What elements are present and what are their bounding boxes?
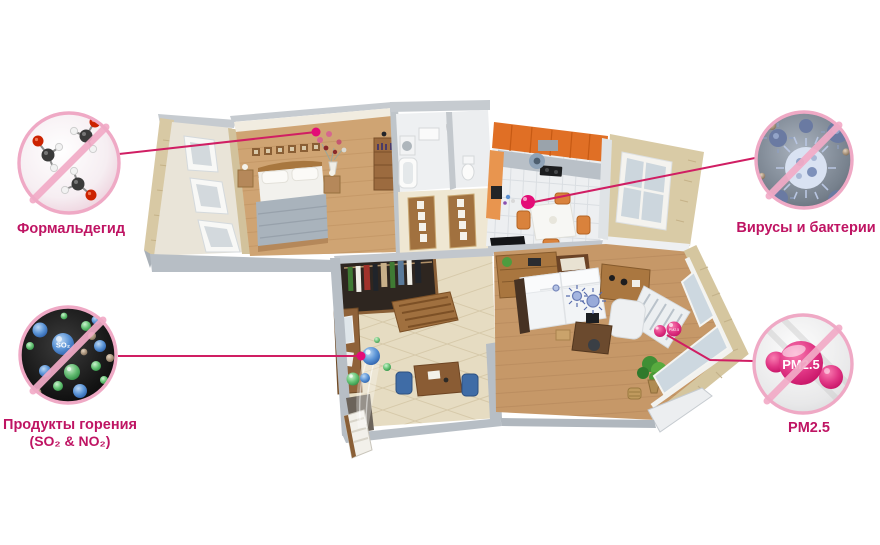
callout-combustion: SO₂ bbox=[20, 307, 116, 412]
bedroom-bottom-wall bbox=[150, 254, 336, 272]
kitchen-fan-center bbox=[534, 158, 541, 165]
virus-marker-glint bbox=[523, 197, 527, 201]
formaldehyde-marker-dot bbox=[312, 128, 321, 137]
callout-formaldehyde bbox=[19, 113, 119, 213]
electronics bbox=[528, 258, 541, 266]
armchair bbox=[608, 298, 647, 340]
hall-chair-right bbox=[462, 374, 478, 396]
label-combustion-line1: Продукты горения bbox=[3, 417, 137, 433]
interior-door-right bbox=[448, 194, 476, 248]
so2-sphere-2 bbox=[64, 364, 80, 380]
plant-small bbox=[502, 257, 512, 267]
apartment-infographic: PM2.5 bbox=[0, 0, 880, 545]
basket bbox=[628, 388, 641, 399]
paper bbox=[428, 370, 441, 379]
label-viruses: Вирусы и бактерии bbox=[736, 220, 875, 236]
desk-chair bbox=[588, 339, 600, 351]
label-combustion-line2: (SO₂ & NO₂) bbox=[30, 433, 111, 449]
bathroom-top-edge bbox=[390, 100, 490, 112]
clock-icon bbox=[382, 132, 387, 137]
washer-door bbox=[402, 141, 412, 151]
label-formaldehyde: Формальдегид bbox=[17, 221, 125, 237]
callout-pm25: PM2.5 bbox=[754, 315, 852, 413]
interior-door-left bbox=[408, 196, 436, 250]
bed bbox=[256, 161, 328, 252]
room-bathroom bbox=[390, 100, 494, 256]
label-pm25: PM2.5 bbox=[788, 420, 830, 436]
floorplan bbox=[144, 100, 745, 458]
oven bbox=[491, 186, 502, 199]
living-bottom-wall bbox=[500, 418, 656, 428]
toilet bbox=[462, 156, 474, 180]
hall-chair-left bbox=[396, 372, 412, 394]
smoke-marker-dot bbox=[357, 352, 366, 361]
hall-table bbox=[414, 362, 462, 396]
bathtub-inner bbox=[403, 162, 413, 184]
callout-viruses bbox=[756, 108, 855, 217]
so2-label: SO₂ bbox=[56, 341, 70, 350]
room-kitchen bbox=[486, 122, 608, 255]
pm25-marker-label: PM2.5 bbox=[669, 328, 679, 332]
cooker-hood bbox=[538, 140, 558, 151]
virus-marker-dot bbox=[521, 195, 535, 209]
bed-pillow bbox=[262, 170, 289, 184]
bed-pillow bbox=[292, 167, 319, 181]
room-kitchen-balcony bbox=[598, 134, 704, 252]
coffee-table bbox=[556, 330, 570, 340]
infographic-canvas: PM2.5 bbox=[0, 0, 880, 545]
stove-cooktop bbox=[540, 165, 563, 177]
monitor bbox=[586, 313, 599, 323]
kitchen-table bbox=[530, 202, 576, 240]
sink bbox=[419, 128, 439, 140]
